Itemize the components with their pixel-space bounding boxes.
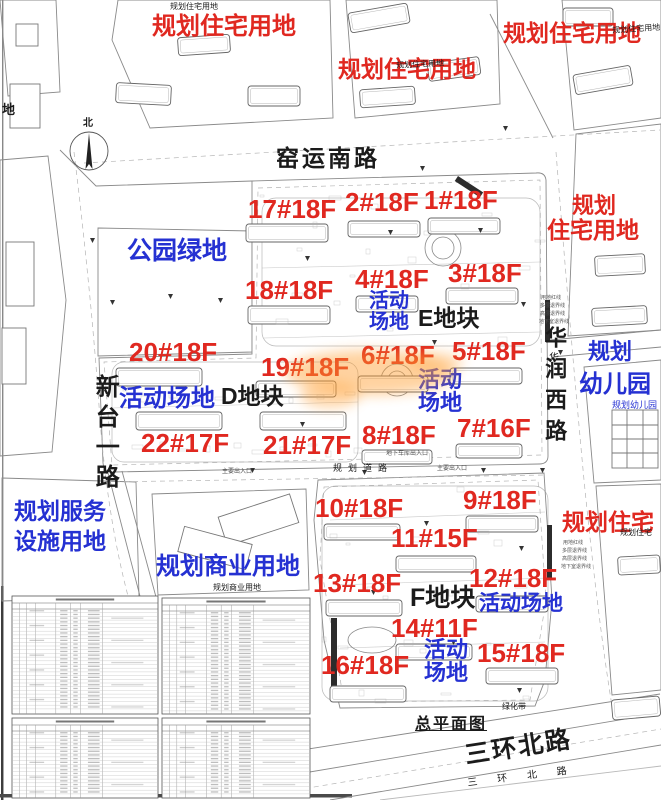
- north-arrow-icon: [70, 132, 108, 170]
- compass-north-label: 北: [83, 114, 93, 129]
- site-plan-page: 北 规划住宅用地规划住宅用地规划住宅用地规划住宅用地规划住宅公园绿地活动 场地活…: [0, 0, 661, 800]
- watermark-blob: [300, 382, 360, 408]
- watermark-blob: [408, 352, 464, 372]
